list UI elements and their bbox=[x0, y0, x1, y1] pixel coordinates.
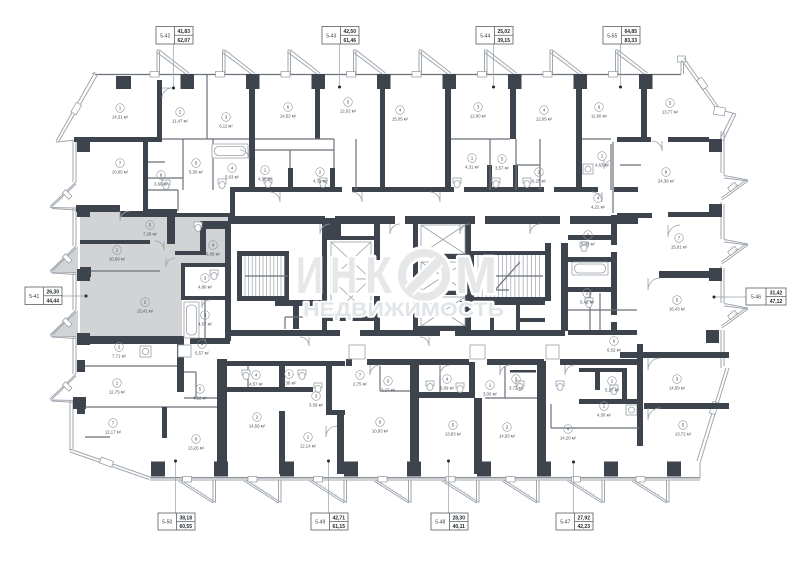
svg-text:14,52 м²: 14,52 м² bbox=[280, 114, 297, 119]
svg-text:5,57 м²: 5,57 м² bbox=[195, 351, 210, 356]
svg-text:26,30: 26,30 bbox=[46, 290, 59, 296]
svg-text:6,52 м²: 6,52 м² bbox=[607, 348, 622, 353]
svg-text:4,80 м²: 4,80 м² bbox=[198, 285, 213, 290]
svg-text:7,28 м²: 7,28 м² bbox=[143, 232, 158, 237]
svg-text:12,17 м²: 12,17 м² bbox=[105, 430, 122, 435]
svg-text:13,83 м²: 13,83 м² bbox=[445, 432, 462, 437]
svg-text:3,57 м²: 3,57 м² bbox=[495, 166, 510, 171]
svg-text:15,01 м²: 15,01 м² bbox=[671, 245, 688, 250]
svg-text:5,03 м²: 5,03 м² bbox=[225, 175, 240, 180]
svg-text:24,38 м²: 24,38 м² bbox=[658, 179, 675, 184]
svg-text:5-44: 5-44 bbox=[480, 33, 490, 39]
svg-text:12,02 м²: 12,02 м² bbox=[340, 109, 357, 114]
svg-text:40,11: 40,11 bbox=[453, 524, 465, 530]
svg-text:3,59 м²: 3,59 м² bbox=[309, 403, 324, 408]
svg-text:Н: Н bbox=[330, 247, 357, 305]
svg-text:62,07: 62,07 bbox=[177, 38, 190, 44]
svg-text:6,11 м²: 6,11 м² bbox=[219, 124, 233, 129]
svg-text:7,71 м²: 7,71 м² bbox=[112, 354, 127, 359]
svg-text:15,05 м²: 15,05 м² bbox=[392, 117, 409, 122]
svg-text:14,93 м²: 14,93 м² bbox=[499, 434, 516, 439]
svg-text:44,44: 44,44 bbox=[46, 298, 59, 304]
svg-text:61,15: 61,15 bbox=[332, 524, 345, 530]
svg-text:12,75 м²: 12,75 м² bbox=[109, 390, 126, 395]
svg-text:5,50 м²: 5,50 м² bbox=[189, 170, 204, 175]
svg-text:5-50: 5-50 bbox=[162, 520, 172, 526]
svg-text:5-55: 5-55 bbox=[607, 33, 617, 39]
svg-text:10,05 м²: 10,05 м² bbox=[112, 170, 129, 175]
svg-text:4,57 м²: 4,57 м² bbox=[249, 382, 264, 387]
svg-text:4,31 м²: 4,31 м² bbox=[465, 165, 480, 170]
svg-text:4,30 м²: 4,30 м² bbox=[258, 177, 273, 182]
svg-text:14,59 м²: 14,59 м² bbox=[669, 386, 686, 391]
svg-text:15,41 м²: 15,41 м² bbox=[137, 309, 154, 314]
svg-text:28,30: 28,30 bbox=[452, 515, 465, 521]
svg-text:13,26 м²: 13,26 м² bbox=[188, 446, 205, 451]
svg-text:64,85: 64,85 bbox=[624, 29, 637, 35]
svg-text:5-46: 5-46 bbox=[751, 295, 761, 301]
svg-text:47,12: 47,12 bbox=[770, 299, 783, 305]
svg-text:41,83: 41,83 bbox=[177, 29, 190, 35]
svg-text:11,47 м²: 11,47 м² bbox=[172, 119, 189, 124]
svg-text:5-42: 5-42 bbox=[160, 33, 170, 39]
svg-text:60,55: 60,55 bbox=[179, 524, 192, 530]
svg-text:3,00 м²: 3,00 м² bbox=[483, 392, 498, 397]
svg-text:5,03 м²: 5,03 м² bbox=[581, 242, 596, 247]
svg-text:5-43: 5-43 bbox=[326, 33, 336, 39]
svg-text:27,92: 27,92 bbox=[577, 515, 590, 521]
svg-text:10,93 м²: 10,93 м² bbox=[372, 429, 389, 434]
svg-text:3,72 м²: 3,72 м² bbox=[509, 386, 524, 391]
svg-text:3,27 м²: 3,27 м² bbox=[381, 388, 396, 393]
svg-text:4,22 м²: 4,22 м² bbox=[591, 205, 606, 210]
svg-text:6,25 м²: 6,25 м² bbox=[532, 179, 547, 184]
svg-text:И: И bbox=[296, 247, 323, 305]
svg-text:10,69 м²: 10,69 м² bbox=[109, 257, 126, 262]
svg-text:4,30 м²: 4,30 м² bbox=[597, 413, 612, 418]
svg-text:12,14 м²: 12,14 м² bbox=[300, 444, 317, 449]
svg-text:4,63 м²: 4,63 м² bbox=[595, 163, 610, 168]
svg-text:5,42 м²: 5,42 м² bbox=[580, 300, 595, 305]
svg-text:42,71: 42,71 bbox=[332, 515, 345, 521]
svg-text:5-41: 5-41 bbox=[29, 294, 39, 300]
svg-text:5-47: 5-47 bbox=[560, 520, 570, 526]
svg-text:5-48: 5-48 bbox=[435, 520, 445, 526]
svg-text:4,72 м²: 4,72 м² bbox=[313, 179, 328, 184]
svg-text:11,60 м²: 11,60 м² bbox=[591, 114, 608, 119]
svg-text:5,09 м²: 5,09 м² bbox=[440, 386, 455, 391]
svg-text:14,56 м²: 14,56 м² bbox=[249, 424, 266, 429]
svg-text:39,15: 39,15 bbox=[497, 38, 510, 44]
svg-text:13,72 м²: 13,72 м² bbox=[675, 432, 692, 437]
svg-text:25,02: 25,02 bbox=[497, 29, 510, 35]
svg-text:14,31 м²: 14,31 м² bbox=[112, 115, 129, 120]
svg-text:14,20 м²: 14,20 м² bbox=[560, 436, 577, 441]
svg-text:М: М bbox=[455, 247, 497, 305]
svg-text:83,33: 83,33 bbox=[624, 38, 637, 44]
svg-text:НЕДВИЖИМОСТЬ: НЕДВИЖИМОСТЬ bbox=[303, 299, 504, 321]
svg-text:4,38 м²: 4,38 м² bbox=[282, 381, 297, 386]
svg-text:38,18: 38,18 bbox=[179, 515, 192, 521]
svg-text:12,00 м²: 12,00 м² bbox=[470, 114, 487, 119]
svg-text:2,75 м²: 2,75 м² bbox=[353, 382, 368, 387]
svg-text:4,12 м²: 4,12 м² bbox=[193, 396, 208, 401]
svg-text:6,08 м²: 6,08 м² bbox=[206, 252, 221, 257]
svg-text:5,27 м²: 5,27 м² bbox=[605, 388, 620, 393]
svg-text:61,46: 61,46 bbox=[343, 38, 356, 44]
svg-text:13,77 м²: 13,77 м² bbox=[662, 110, 679, 115]
svg-text:3,60 м²: 3,60 м² bbox=[154, 182, 169, 187]
svg-text:16,43 м²: 16,43 м² bbox=[669, 307, 686, 312]
svg-text:4,57 м²: 4,57 м² bbox=[198, 322, 213, 327]
svg-text:42,50: 42,50 bbox=[343, 29, 356, 35]
svg-text:12,05 м²: 12,05 м² bbox=[536, 117, 553, 122]
svg-text:5-49: 5-49 bbox=[315, 520, 325, 526]
svg-text:42,23: 42,23 bbox=[577, 524, 590, 530]
svg-text:31,42: 31,42 bbox=[770, 290, 783, 296]
svg-text:К: К bbox=[365, 247, 392, 305]
